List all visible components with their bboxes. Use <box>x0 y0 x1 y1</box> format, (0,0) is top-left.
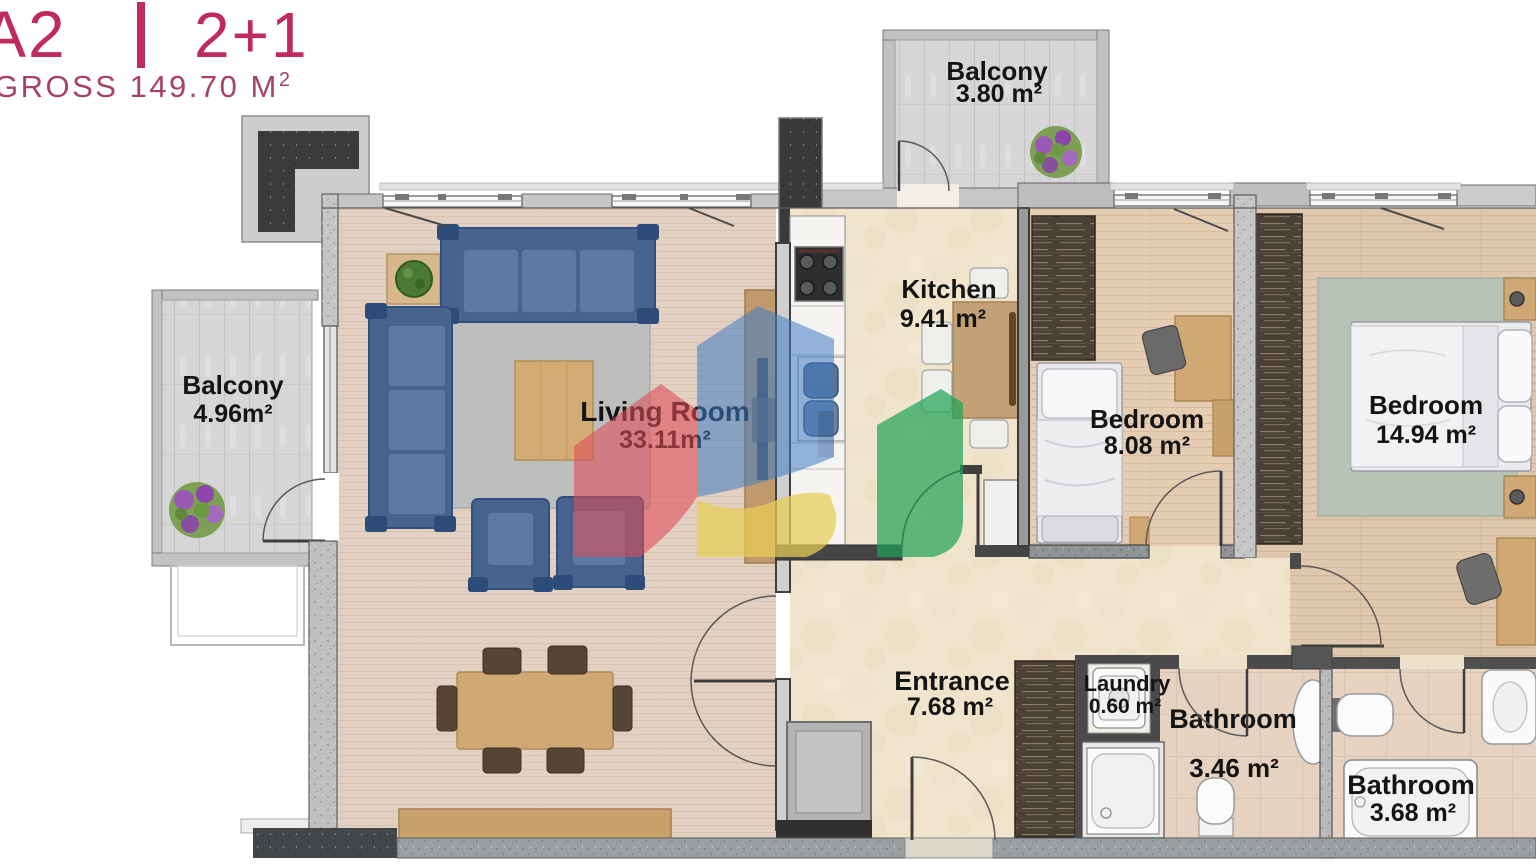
svg-text:3.80 m²: 3.80 m² <box>956 80 1042 108</box>
svg-text:Bathroom: Bathroom <box>1347 770 1475 800</box>
svg-text:7.68 m²: 7.68 m² <box>907 693 993 721</box>
svg-text:Laundry: Laundry <box>1084 671 1172 696</box>
svg-text:8.08 m²: 8.08 m² <box>1104 432 1190 460</box>
svg-text:2+1: 2+1 <box>194 0 309 71</box>
svg-text:Entrance: Entrance <box>894 666 1010 696</box>
svg-text:0.60 m²: 0.60 m² <box>1089 695 1161 718</box>
svg-text:Bathroom: Bathroom <box>1169 704 1297 734</box>
svg-text:A2: A2 <box>0 0 67 71</box>
svg-text:Bedroom: Bedroom <box>1369 390 1483 420</box>
svg-text:Bedroom: Bedroom <box>1090 404 1204 434</box>
svg-text:Balcony: Balcony <box>182 370 284 400</box>
svg-text:4.96m²: 4.96m² <box>193 400 272 428</box>
svg-text:3.46 m²: 3.46 m² <box>1189 753 1279 783</box>
svg-text:14.94 m²: 14.94 m² <box>1376 421 1476 449</box>
svg-text:9.41 m²: 9.41 m² <box>900 305 986 333</box>
svg-text:Kitchen: Kitchen <box>901 274 996 304</box>
svg-text:3.68 m²: 3.68 m² <box>1370 799 1456 827</box>
svg-text:GROSS 149.70 M2: GROSS 149.70 M2 <box>0 69 292 104</box>
